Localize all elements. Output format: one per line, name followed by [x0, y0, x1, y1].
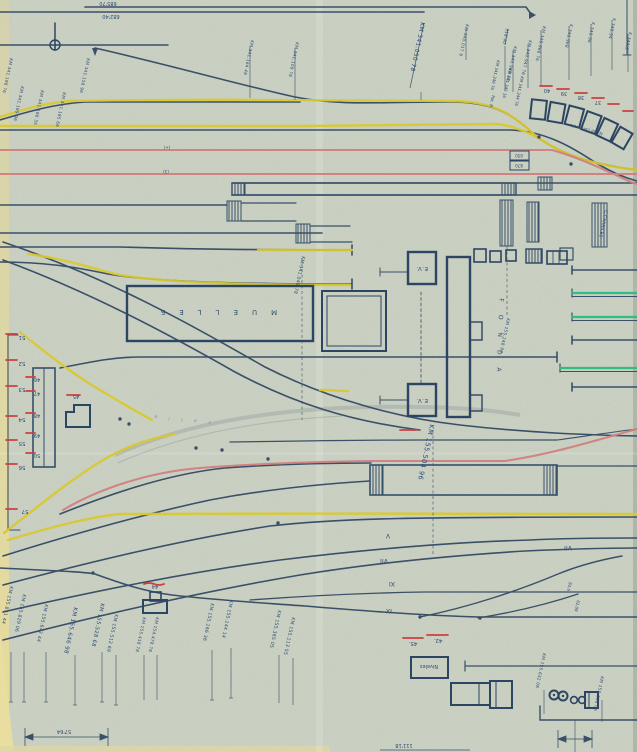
elevation-label: 685'70	[99, 0, 116, 6]
track-plan-canvas: 685'70 682'40 KM 341.198 76 KM 341.189 9…	[0, 0, 637, 752]
boxed-value: 870	[515, 163, 523, 168]
track-number: 50	[34, 452, 40, 458]
building-label-ev: E.V.	[416, 397, 428, 403]
fold-crease	[316, 0, 323, 752]
building-number: 45	[73, 393, 79, 399]
track-number: 38	[578, 94, 584, 100]
track-number: 57	[21, 508, 28, 514]
track-number: 40	[544, 87, 550, 93]
roman-track-numeral: IX	[385, 607, 392, 614]
elevation-label: 682'40	[102, 13, 119, 19]
track-number: 56	[18, 464, 25, 470]
dimension-label: 111'18	[395, 742, 412, 748]
track-number: 51	[19, 334, 26, 340]
track-number: 45.	[408, 640, 417, 646]
roman-track-numeral: VII	[564, 544, 572, 551]
annotation: (+)	[163, 145, 170, 150]
building-number: 44	[152, 583, 158, 589]
track-number: 48	[34, 412, 40, 418]
track-number: 37	[595, 99, 601, 105]
building-label-muelles: MUELLES	[147, 308, 277, 316]
roman-track-numeral: XI	[389, 580, 395, 587]
track-number: 42.	[433, 637, 442, 643]
building-label-niveles: Niveles	[419, 663, 438, 669]
track-number: 46	[34, 376, 40, 382]
track-number: 53	[18, 386, 25, 392]
track-number: 55	[18, 440, 25, 446]
roman-track-numeral: VII	[380, 557, 388, 564]
building-label-ev: E.V.	[416, 265, 428, 271]
track-number: 54	[18, 416, 25, 422]
dimension-label: 57'64	[57, 728, 71, 734]
track-number: 49	[34, 432, 40, 438]
boxed-value: 650	[515, 153, 523, 158]
track-number: 39	[561, 90, 567, 96]
track-number: 47	[34, 390, 40, 396]
annotation: (3)	[163, 169, 169, 174]
scanned-track-plan: 685'70 682'40 KM 341.198 76 KM 341.189 9…	[0, 0, 637, 752]
track-number: 52	[19, 360, 26, 366]
